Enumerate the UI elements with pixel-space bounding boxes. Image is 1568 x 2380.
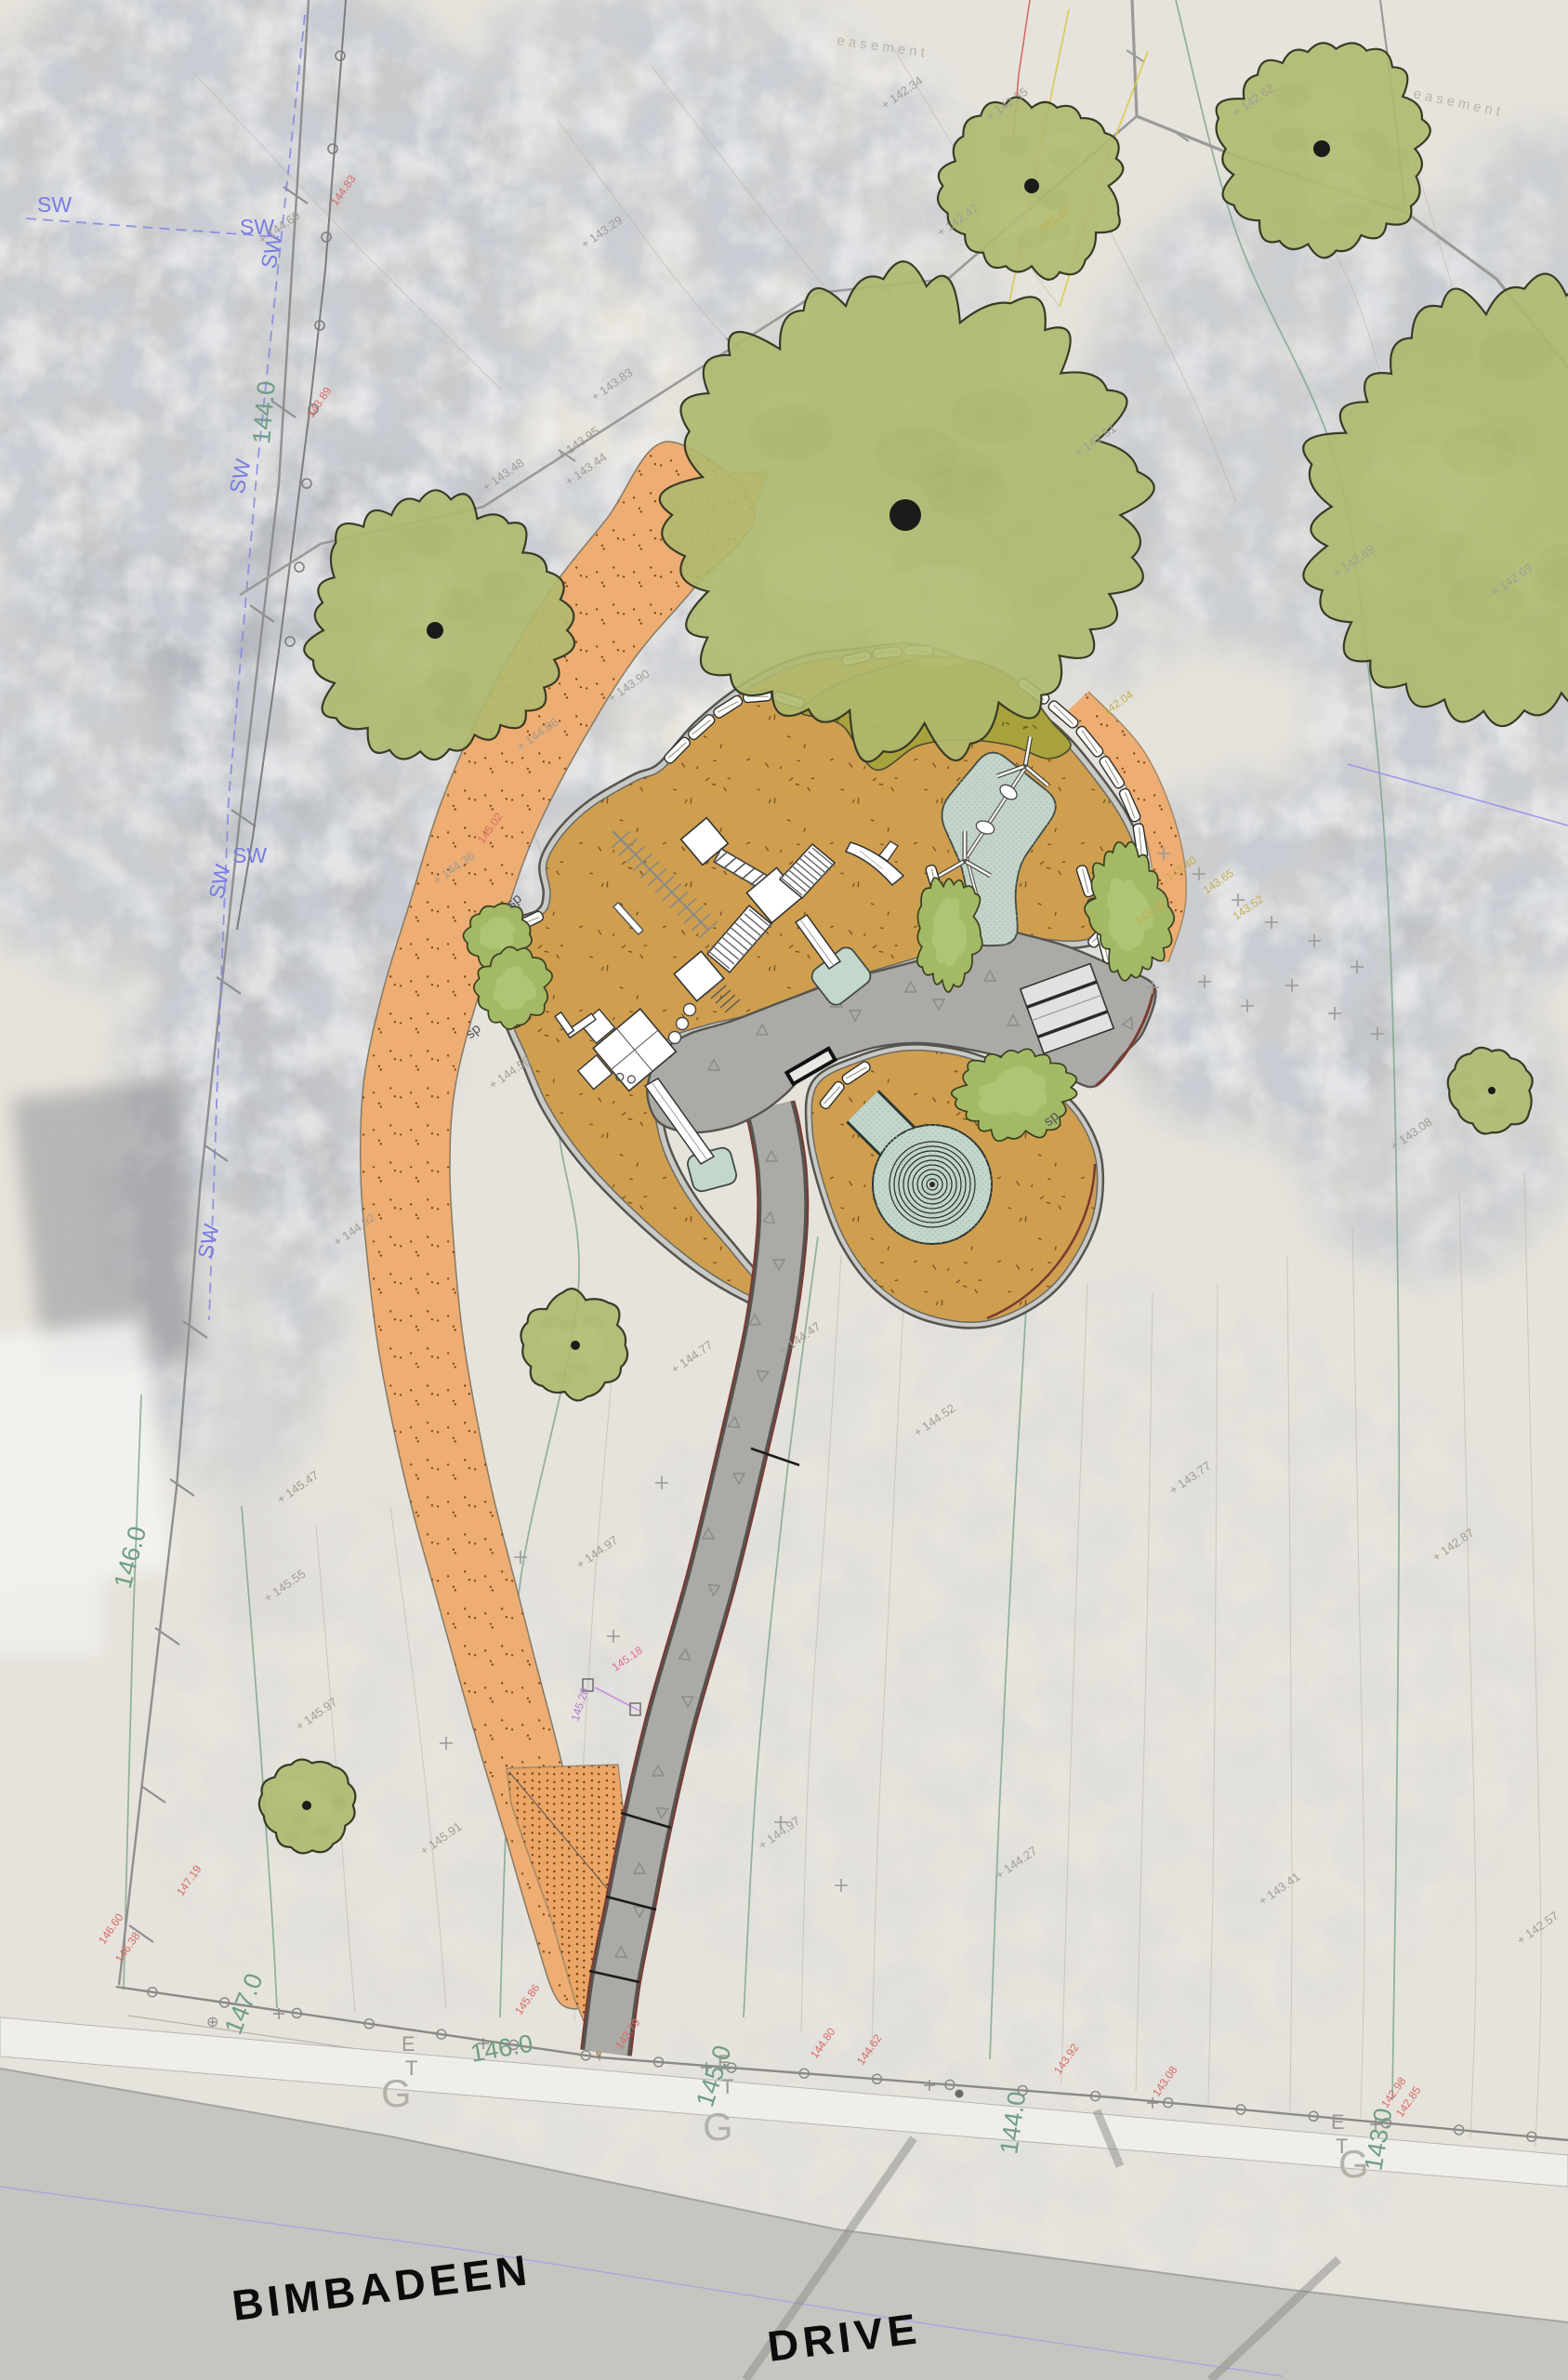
svg-text:144.0: 144.0 [247,380,281,445]
svg-text:SW: SW [37,192,72,217]
svg-text:E: E [1331,2110,1345,2134]
svg-text:E: E [402,2032,415,2056]
svg-text:SW: SW [232,843,267,867]
svg-text:G: G [381,2071,412,2115]
svg-text:⊕: ⊕ [206,2015,218,2030]
svg-text:G: G [703,2105,733,2149]
